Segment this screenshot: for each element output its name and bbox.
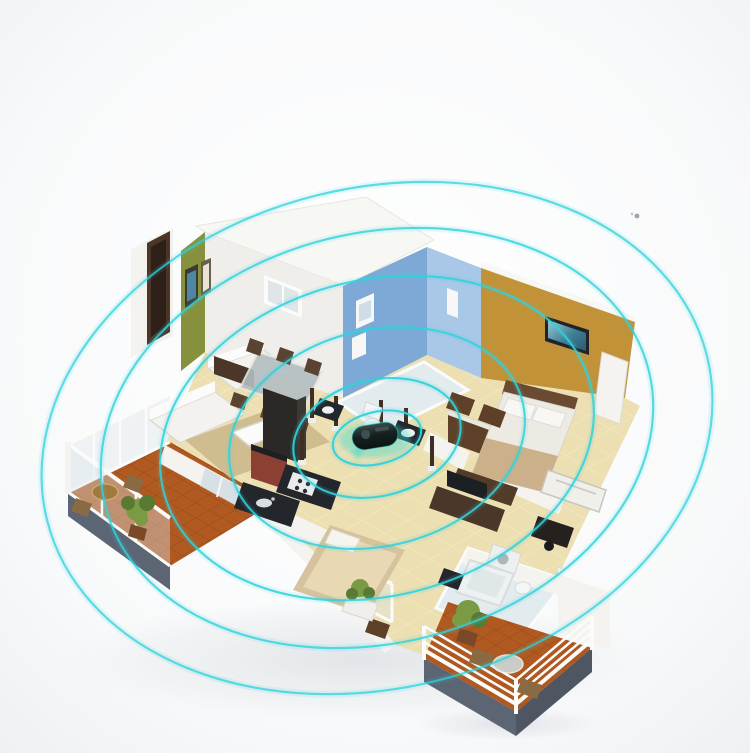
product-illustration [0, 0, 750, 753]
left-wall-stub [131, 243, 143, 358]
desk-chair [544, 541, 554, 551]
